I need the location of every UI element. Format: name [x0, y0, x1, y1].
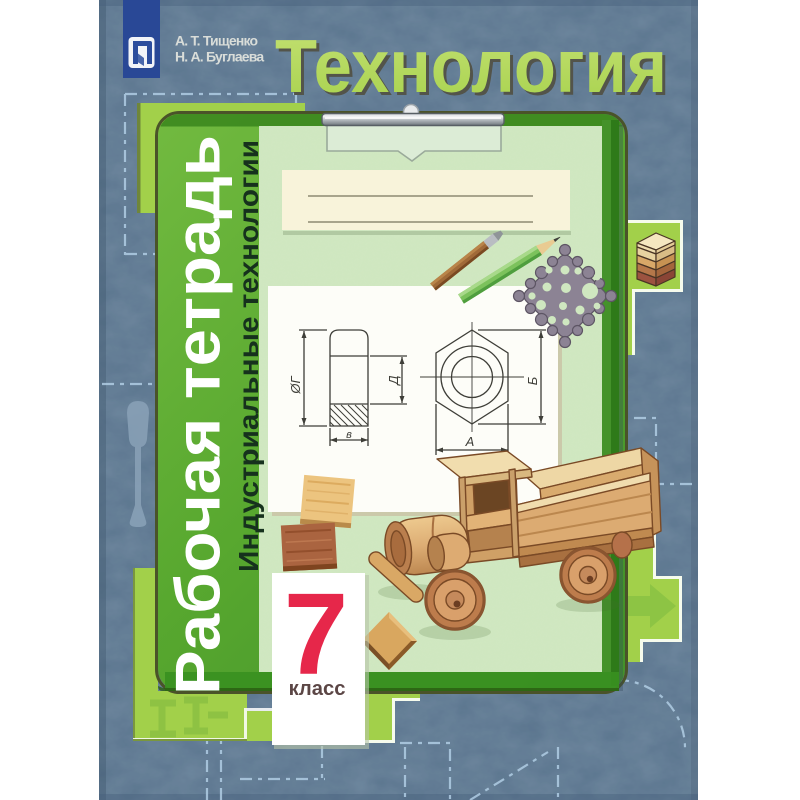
svg-text:Технология: Технология	[275, 24, 667, 108]
svg-text:Б: Б	[525, 376, 540, 385]
svg-text:Рабочая тетрадь: Рабочая тетрадь	[164, 135, 234, 695]
svg-text:Индустриальные технологии: Индустриальные технологии	[233, 140, 264, 572]
svg-text:класс: класс	[289, 678, 346, 700]
svg-text:Н. А. Буглаева: Н. А. Буглаева	[175, 49, 264, 65]
svg-text:в: в	[346, 429, 352, 441]
svg-text:А: А	[465, 434, 475, 449]
svg-text:А. Т. Тищенко: А. Т. Тищенко	[175, 33, 258, 49]
svg-text:Д: Д	[386, 375, 401, 386]
svg-text:ØГ: ØГ	[288, 375, 303, 394]
